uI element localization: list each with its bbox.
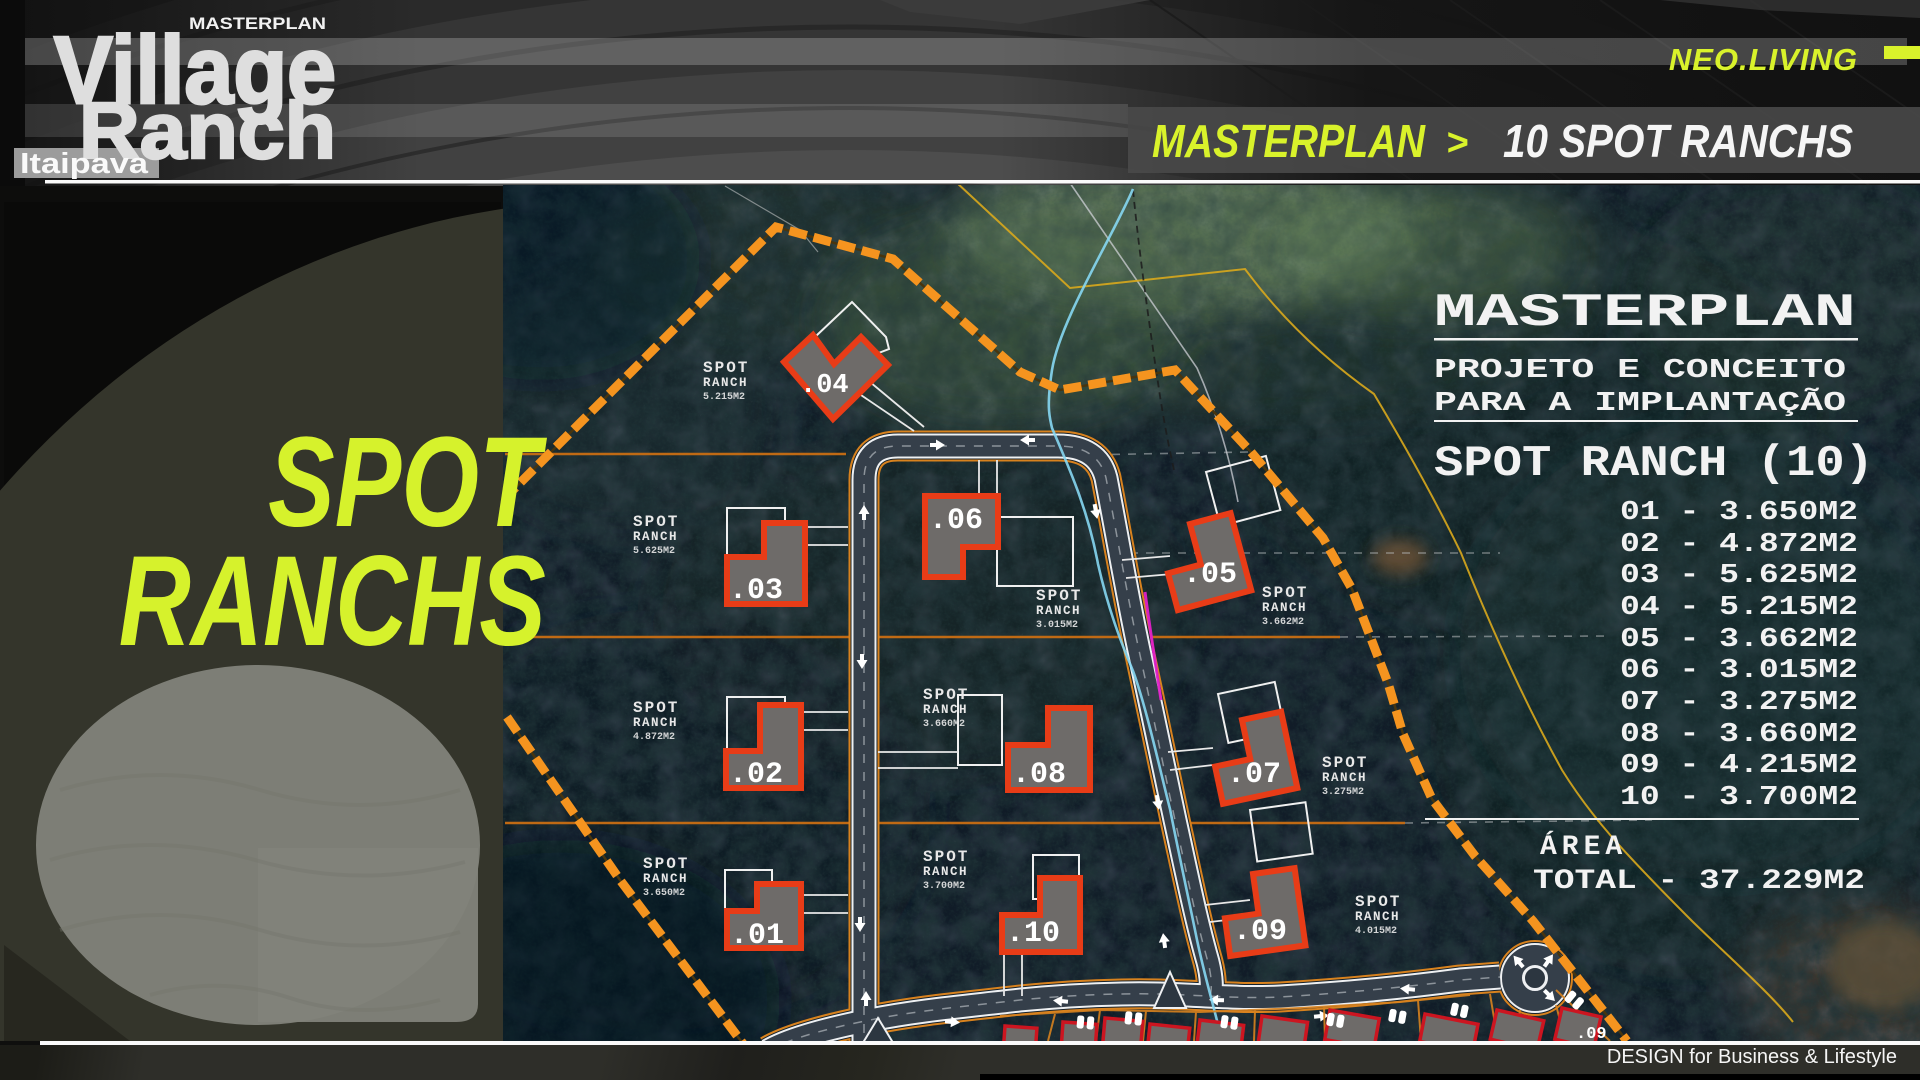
svg-text:3.662M2: 3.662M2 — [1262, 617, 1304, 628]
svg-text:10 - 3.700M2: 10 - 3.700M2 — [1620, 783, 1858, 813]
svg-text:4.872M2: 4.872M2 — [633, 732, 675, 743]
svg-text:3.015M2: 3.015M2 — [1036, 620, 1078, 631]
svg-text:04 - 5.215M2: 04 - 5.215M2 — [1620, 593, 1858, 623]
svg-text:SPOT: SPOT — [1036, 587, 1082, 605]
svg-text:10 SPOT RANCHS: 10 SPOT RANCHS — [1503, 115, 1853, 167]
svg-text:SPOT RANCH (10): SPOT RANCH (10) — [1434, 439, 1874, 489]
svg-text:08 - 3.660M2: 08 - 3.660M2 — [1620, 720, 1858, 750]
svg-text:.07: .07 — [1227, 758, 1281, 792]
svg-text:05 - 3.662M2: 05 - 3.662M2 — [1620, 625, 1858, 655]
svg-text:SPOT: SPOT — [1262, 584, 1308, 602]
svg-text:TOTAL - 37.229M2: TOTAL - 37.229M2 — [1533, 866, 1865, 897]
svg-text:MASTERPLAN: MASTERPLAN — [1152, 115, 1426, 167]
svg-text:RANCH: RANCH — [633, 716, 678, 730]
svg-text:SPOT: SPOT — [703, 359, 749, 377]
svg-text:.02: .02 — [729, 758, 783, 792]
svg-text:09 - 4.215M2: 09 - 4.215M2 — [1620, 751, 1858, 781]
svg-text:PROJETO E CONCEITO: PROJETO E CONCEITO — [1434, 356, 1846, 386]
svg-text:3.700M2: 3.700M2 — [923, 881, 965, 892]
svg-text:3.275M2: 3.275M2 — [1322, 787, 1364, 798]
svg-text:Itaipava: Itaipava — [20, 148, 149, 180]
svg-text:RANCH: RANCH — [1322, 771, 1367, 785]
svg-text:.10: .10 — [1006, 917, 1060, 951]
svg-text:>: > — [1446, 122, 1468, 164]
svg-text:SPOT: SPOT — [923, 848, 969, 866]
svg-text:.05: .05 — [1183, 558, 1237, 592]
svg-text:4.015M2: 4.015M2 — [1355, 926, 1397, 937]
svg-text:RANCH: RANCH — [643, 872, 688, 886]
svg-text:RANCH: RANCH — [1036, 604, 1081, 618]
svg-text:3.660M2: 3.660M2 — [923, 719, 965, 730]
svg-text:RANCH: RANCH — [703, 376, 748, 390]
svg-text:01 - 3.650M2: 01 - 3.650M2 — [1620, 498, 1858, 528]
svg-text:.06: .06 — [929, 504, 983, 538]
svg-text:SPOT: SPOT — [633, 699, 679, 717]
svg-text:RANCH: RANCH — [633, 530, 678, 544]
svg-text:RANCH: RANCH — [923, 703, 968, 717]
svg-text:5.625M2: 5.625M2 — [633, 546, 675, 557]
svg-text:03 - 5.625M2: 03 - 5.625M2 — [1620, 561, 1858, 591]
svg-text:ÁREA: ÁREA — [1540, 831, 1627, 863]
svg-text:RANCH: RANCH — [923, 865, 968, 879]
svg-text:SPOT: SPOT — [633, 513, 679, 531]
svg-text:5.215M2: 5.215M2 — [703, 392, 745, 403]
svg-text:SPOT: SPOT — [923, 686, 969, 704]
svg-text:SPOT: SPOT — [1355, 893, 1401, 911]
svg-text:SPOT: SPOT — [643, 855, 689, 873]
svg-text:.08: .08 — [1012, 758, 1066, 792]
svg-text:RANCH: RANCH — [1355, 910, 1400, 924]
svg-text:.01: .01 — [730, 919, 784, 953]
svg-text:.04: .04 — [800, 371, 849, 401]
svg-text:02 - 4.872M2: 02 - 4.872M2 — [1620, 530, 1858, 560]
svg-text:SPOT: SPOT — [1322, 754, 1368, 772]
svg-text:RANCH: RANCH — [1262, 601, 1307, 615]
svg-text:.03: .03 — [729, 574, 783, 608]
svg-text:NEO.LIVING: NEO.LIVING — [1669, 42, 1858, 77]
svg-text:.09: .09 — [1233, 915, 1287, 949]
svg-text:07 - 3.275M2: 07 - 3.275M2 — [1620, 688, 1858, 718]
svg-text:.09: .09 — [1576, 1025, 1607, 1041]
svg-text:3.650M2: 3.650M2 — [643, 888, 685, 899]
svg-text:PARA A IMPLANTAÇÃO: PARA A IMPLANTAÇÃO — [1434, 386, 1846, 419]
svg-text:06 - 3.015M2: 06 - 3.015M2 — [1620, 656, 1858, 686]
svg-text:MASTERPLAN: MASTERPLAN — [1434, 287, 1856, 339]
